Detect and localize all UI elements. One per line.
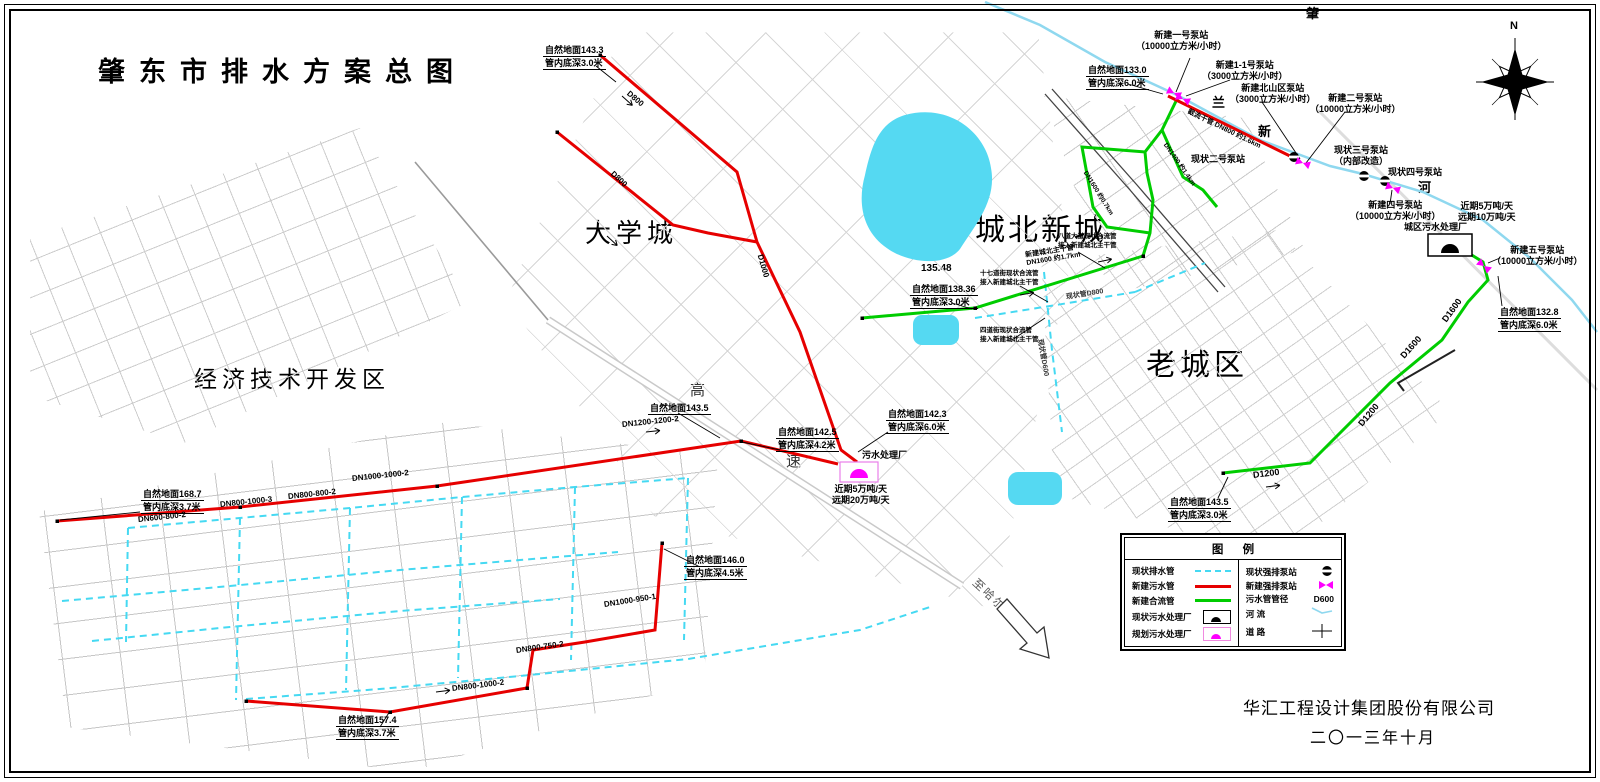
river (985, 2, 1597, 332)
city-treatment-plant-symbol (1428, 234, 1472, 256)
city-plant-capacity: 近期5万吨/天远期10万吨/天 (1458, 201, 1516, 223)
pump-label-new-beishan: 新建北山区泵站（3000立方米/小时） (1230, 83, 1316, 105)
ground-note-4: 自然地面143.5 (648, 402, 711, 415)
dev-plant-capacity: 近期5万吨/天远期20万吨/天 (832, 484, 890, 506)
legend-item-existing-plant: 现状污水处理厂 (1132, 610, 1231, 624)
ground-note-10: 自然地面143.5管内底深3.0米 (1168, 496, 1231, 522)
legend-title: 图 例 (1125, 538, 1341, 560)
connect-note-badao: 八道大道现状合流管接入新建城北主干管 (1058, 233, 1117, 250)
compass-rose (1476, 38, 1554, 120)
ground-note-1: 自然地面143.3管内底深3.0米 (543, 44, 606, 70)
planned-plant-icon (1203, 627, 1231, 641)
legend-item-river: 河 流 (1246, 606, 1334, 622)
ground-note-7: 自然地面146.0管内底深4.5米 (684, 554, 747, 580)
pump-label-existing-2: 现状二号泵站 (1191, 154, 1245, 165)
ground-note-11: 自然地面132.8管内底深6.0米 (1498, 306, 1561, 332)
design-company: 华汇工程设计集团股份有限公司 (1243, 694, 1495, 719)
pump-label-existing-3: 现状三号泵站（内部改造） (1334, 145, 1388, 167)
legend-item-new-sewage: 新建污水管 (1132, 580, 1231, 592)
to-harbin-arrow (997, 599, 1049, 658)
wetland-lake (862, 112, 992, 261)
pump-label-existing-4: 现状四号泵站 (1388, 167, 1442, 178)
legend-item-planned-plant: 规划污水处理厂 (1132, 627, 1231, 641)
legend-box: 图 例 现状排水管 新建污水管 新建合流管 (1120, 533, 1346, 651)
new-sewage-pipes (57, 55, 1292, 712)
legend-item-pipe-diameter: 污水管管径 D600 (1246, 593, 1334, 605)
connect-note-shiqidao: 十七道街现状合流管接入新建城北主干管 (980, 270, 1039, 287)
road-icon (1310, 623, 1334, 641)
river-icon (1310, 606, 1334, 622)
ground-note-8: 自然地面157.4管内底深3.7米 (336, 714, 399, 740)
new-sewage-swatch (1195, 585, 1231, 588)
pump-label-new-2: 新建二号泵站（10000立方米/小时） (1310, 93, 1401, 115)
ground-note-6: 自然地面142.3管内底深6.0米 (886, 408, 949, 434)
pipe-diameter-sample: D600 (1314, 594, 1334, 604)
ground-note-2: 自然地面133.0管内底深6.0米 (1086, 64, 1149, 90)
map-vector-layer (0, 0, 1600, 782)
legend-item-new-pump: 新建强排泵站 (1246, 580, 1334, 592)
existing-drain-swatch (1195, 570, 1231, 572)
pump-label-new-1: 新建一号泵站（10000立方米/小时） (1136, 30, 1227, 52)
design-date: 二〇一三年十月 (1310, 724, 1436, 748)
legend-item-existing-pump: 现状强排泵站 (1246, 565, 1334, 579)
drainage-plan-map: 肇东市排水方案总图 大学城 城北新城 经济技术开发区 老城区 肇 兰 新 河 肇… (0, 0, 1600, 782)
artificial-lake-1 (913, 315, 959, 345)
ground-note-5: 自然地面142.5管内底深4.2米 (776, 426, 839, 452)
new-combined-swatch (1195, 599, 1231, 602)
legend-item-road: 道 路 (1246, 623, 1334, 641)
existing-pump-icon (1320, 565, 1334, 579)
pump-label-new-1-1: 新建1-1号泵站（3000立方米/小时） (1202, 60, 1288, 82)
dev-plant-label: 污水处理厂 (862, 450, 907, 461)
connect-note-sidao: 四道街现状合流管接入新建城北主干管 (980, 327, 1039, 344)
planned-treatment-plant-symbol (840, 462, 878, 482)
highway (415, 110, 1597, 586)
new-pump-icon (1318, 580, 1334, 592)
existing-plant-icon (1203, 610, 1231, 624)
legend-item-existing-drain: 现状排水管 (1132, 565, 1231, 577)
pump-label-new-4: 新建四号泵站（10000立方米/小时） (1350, 200, 1441, 222)
ground-note-9: 自然地面168.7管内底深3.7米 (141, 488, 204, 514)
city-plant-label: 城区污水处理厂 (1404, 222, 1467, 233)
pump-label-new-5: 新建五号泵站（10000立方米/小时） (1492, 245, 1583, 267)
ground-note-3: 自然地面138.36管内底深3.0米 (910, 283, 978, 309)
legend-item-new-combined: 新建合流管 (1132, 595, 1231, 607)
artificial-lake-2 (1008, 472, 1062, 505)
